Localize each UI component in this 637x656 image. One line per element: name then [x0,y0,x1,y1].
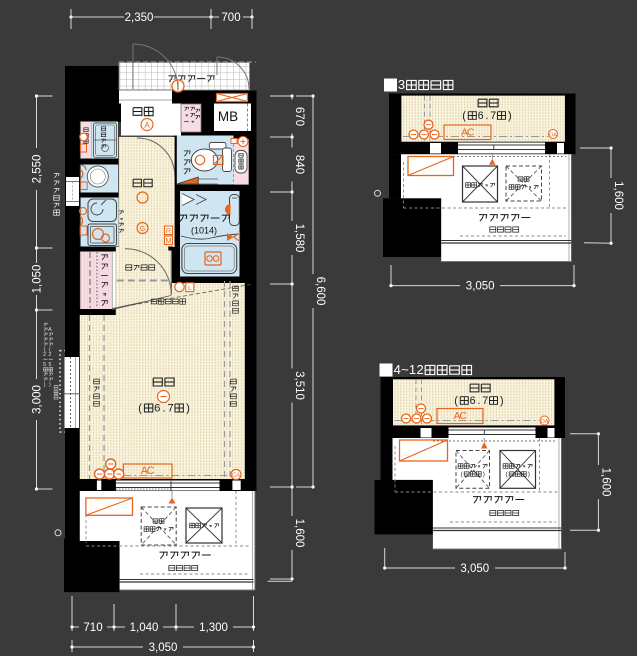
svg-text:1: 1 [409,362,416,377]
svg-text:4: 4 [394,362,401,377]
svg-text:(: ( [462,110,466,122]
svg-text:5: 5 [43,362,46,368]
svg-text:6,600: 6,600 [314,277,326,306]
svg-text:7: 7 [167,403,173,415]
svg-text:.: . [477,395,480,407]
svg-text:6: 6 [478,110,484,122]
svg-text:3,050: 3,050 [460,563,489,575]
svg-text:2: 2 [43,352,46,358]
svg-text:1,300: 1,300 [199,622,228,634]
svg-text:C: C [467,128,475,139]
svg-text:L: L [188,285,192,292]
svg-text:.: . [162,403,165,415]
svg-text:R: R [166,226,172,235]
svg-text:): ) [186,403,190,415]
svg-text:1,580: 1,580 [293,224,305,253]
svg-text:3,510: 3,510 [293,371,305,400]
svg-text:2,350: 2,350 [125,12,154,24]
svg-text:710: 710 [83,622,102,634]
svg-text:5: 5 [48,362,51,368]
svg-text:2: 2 [48,352,51,358]
svg-text:(: ( [138,403,142,415]
svg-text:): ) [483,471,485,478]
svg-text:A: A [144,121,150,130]
svg-text:): ) [500,395,504,407]
svg-text:G: G [140,226,145,233]
svg-text:M: M [165,236,171,245]
svg-text:): ) [508,110,512,122]
svg-text:700: 700 [221,12,240,24]
svg-text:3,050: 3,050 [466,281,495,293]
svg-text:): ) [44,382,46,388]
svg-text:OA: OA [549,133,557,139]
svg-text:1,050: 1,050 [32,265,44,294]
svg-text:MB: MB [218,109,238,124]
svg-text:3,050: 3,050 [149,642,178,654]
svg-text:A: A [48,327,52,333]
svg-text:CA: CA [232,473,240,479]
svg-text:C: C [459,411,467,422]
svg-text:.: . [485,110,488,122]
svg-text:(1014): (1014) [191,226,217,236]
svg-text:3,000: 3,000 [32,385,44,414]
svg-text:): ) [528,471,530,478]
svg-text:OA: OA [541,419,549,425]
svg-text:7: 7 [482,395,488,407]
svg-text:1,600: 1,600 [293,519,305,548]
svg-text:840: 840 [293,155,305,174]
svg-text:1,600: 1,600 [599,468,611,497]
svg-text:(: ( [454,395,458,407]
svg-text:6: 6 [154,403,160,415]
svg-text:1,040: 1,040 [130,622,159,634]
svg-text:7: 7 [490,110,496,122]
svg-text:2,550: 2,550 [32,155,44,184]
svg-text:670: 670 [293,107,305,126]
svg-text:3: 3 [398,77,405,92]
svg-text:2: 2 [416,362,423,377]
svg-text:1,600: 1,600 [612,181,624,210]
svg-text:6: 6 [470,395,476,407]
svg-text:): ) [49,382,51,388]
svg-text:C: C [147,465,155,477]
